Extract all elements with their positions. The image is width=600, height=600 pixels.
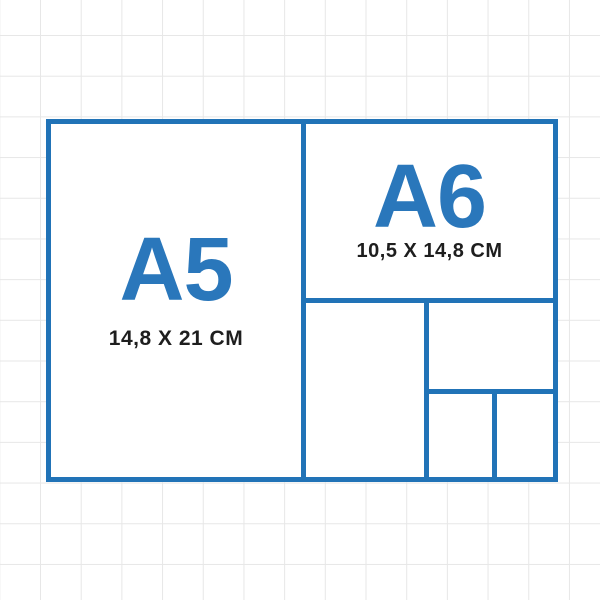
panel-a6: A6 10,5 X 14,8 CM	[306, 124, 553, 298]
panel-a5: A5 14,8 X 21 CM	[51, 124, 301, 477]
panel-a8	[429, 303, 553, 389]
canvas: A5 14,8 X 21 CM A6 10,5 X 14,8 CM	[0, 0, 600, 600]
divider-a8-a9	[424, 389, 553, 394]
panel-a9-right	[497, 394, 553, 477]
panel-a9-left	[429, 394, 492, 477]
paper-sizes-diagram: A5 14,8 X 21 CM A6 10,5 X 14,8 CM	[46, 119, 558, 482]
divider-a9-a9	[492, 389, 497, 477]
panel-a7	[306, 303, 424, 477]
divider-a7-a8	[424, 298, 429, 477]
a5-label: A5	[119, 232, 232, 309]
a6-label: A6	[373, 159, 486, 236]
a5-dimensions: 14,8 X 21 CM	[109, 327, 243, 351]
a6-dimensions: 10,5 X 14,8 CM	[357, 240, 503, 263]
